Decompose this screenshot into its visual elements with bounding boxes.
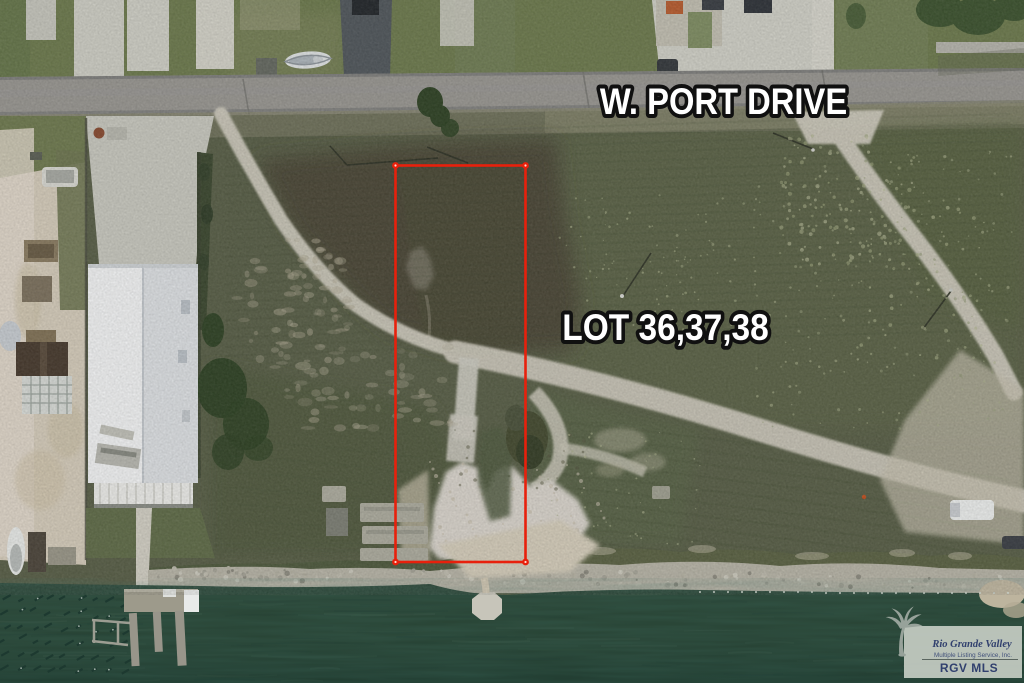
svg-text:W. PORT DRIVE: W. PORT DRIVE <box>600 81 847 122</box>
svg-text:Multiple Listing Service, Inc.: Multiple Listing Service, Inc. <box>934 652 1012 659</box>
svg-text:RGV MLS: RGV MLS <box>940 661 998 675</box>
svg-text:LOT 36,37,38: LOT 36,37,38 <box>562 307 768 348</box>
svg-text:Rio Grande Valley: Rio Grande Valley <box>931 639 1012 650</box>
